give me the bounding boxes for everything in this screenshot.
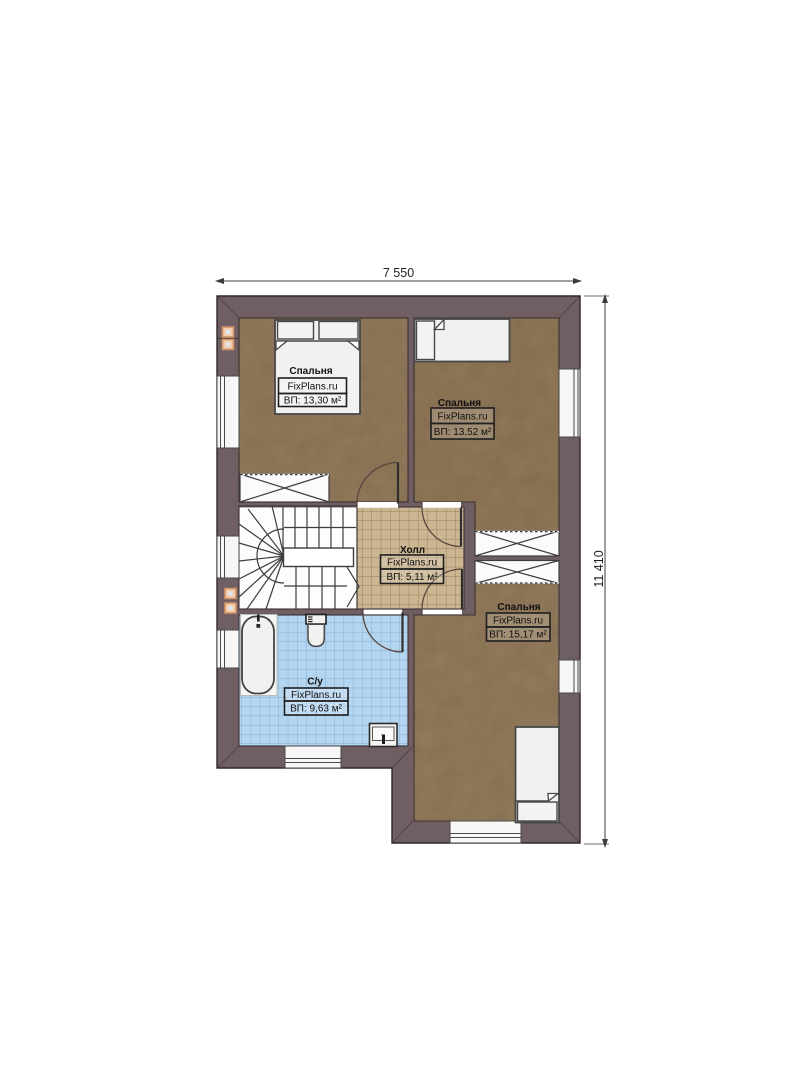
svg-text:ВП: 5,11 м²: ВП: 5,11 м² [386,572,438,583]
svg-text:ВП: 13,52 м²: ВП: 13,52 м² [434,427,492,438]
svg-text:7 550: 7 550 [383,266,414,280]
svg-text:Спальня: Спальня [289,366,332,377]
svg-text:FixPlans.ru: FixPlans.ru [291,690,341,701]
svg-text:Спальня: Спальня [497,602,540,613]
svg-text:FixPlans.ru: FixPlans.ru [437,412,487,423]
svg-text:FixPlans.ru: FixPlans.ru [493,616,543,627]
svg-text:С/у: С/у [307,677,323,688]
svg-text:ВП: 15,17 м²: ВП: 15,17 м² [489,630,547,641]
svg-text:FixPlans.ru: FixPlans.ru [387,558,437,569]
svg-text:ВП: 9,63 м²: ВП: 9,63 м² [290,704,343,715]
svg-text:FixPlans.ru: FixPlans.ru [287,382,337,393]
svg-text:11 410: 11 410 [592,550,606,587]
svg-text:ВП: 13,30 м²: ВП: 13,30 м² [284,396,342,407]
